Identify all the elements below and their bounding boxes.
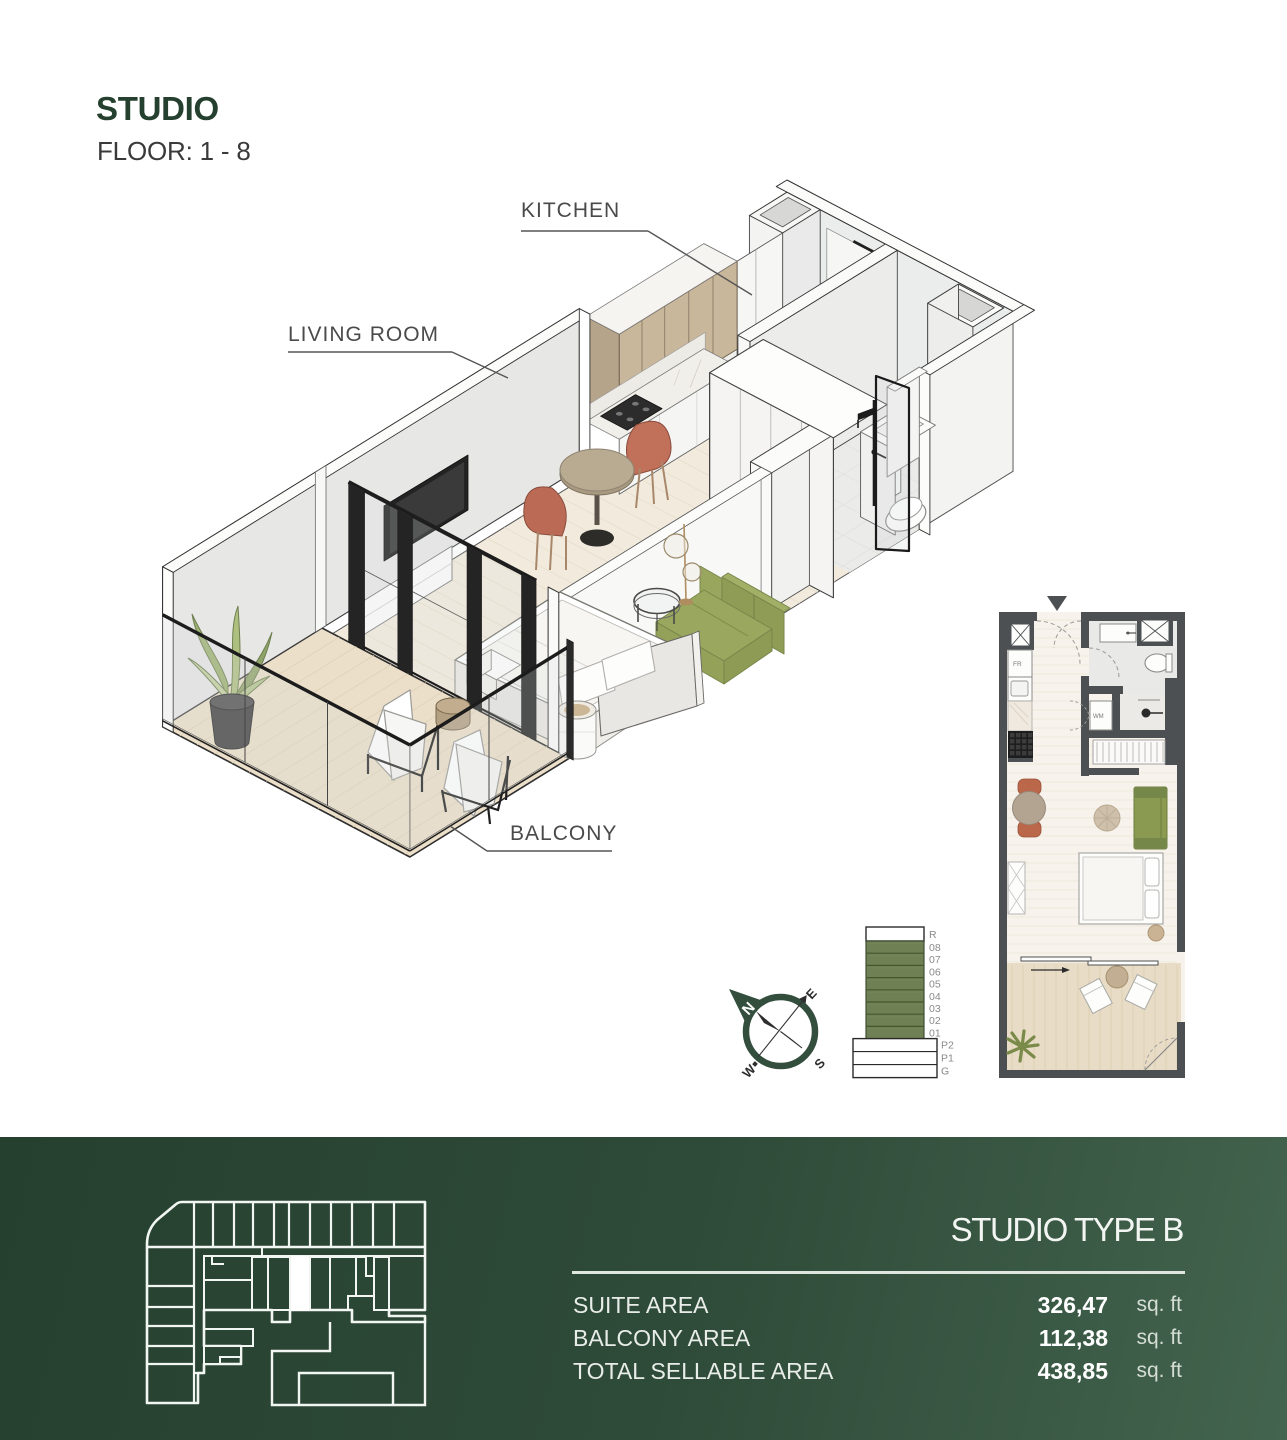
svg-text:S: S — [811, 1055, 828, 1072]
svg-text:02: 02 — [929, 1015, 941, 1027]
svg-text:FR: FR — [1013, 661, 1022, 668]
svg-text:LIVING ROOM: LIVING ROOM — [288, 323, 439, 346]
svg-text:BALCONY: BALCONY — [510, 822, 617, 845]
svg-text:04: 04 — [929, 991, 941, 1003]
svg-text:R: R — [929, 929, 937, 941]
svg-text:P2: P2 — [941, 1040, 954, 1052]
svg-text:KITCHEN: KITCHEN — [521, 199, 620, 222]
svg-text:WM: WM — [1093, 714, 1104, 720]
svg-text:08: 08 — [929, 942, 941, 954]
svg-text:07: 07 — [929, 954, 941, 966]
svg-text:01: 01 — [929, 1027, 941, 1039]
svg-text:G: G — [941, 1066, 949, 1078]
svg-text:03: 03 — [929, 1003, 941, 1015]
svg-text:06: 06 — [929, 966, 941, 978]
svg-text:P1: P1 — [941, 1053, 954, 1065]
svg-text:05: 05 — [929, 979, 941, 991]
